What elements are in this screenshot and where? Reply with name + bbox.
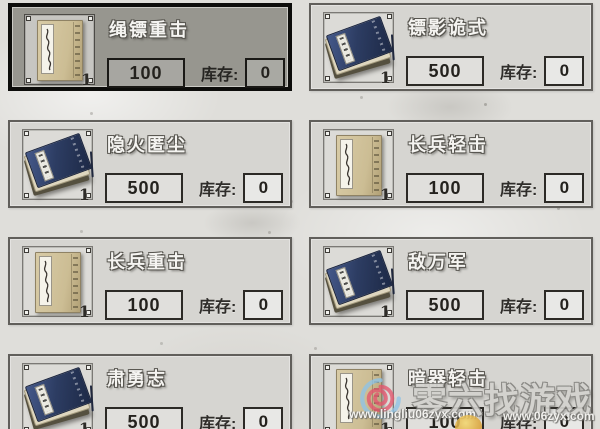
stock-value: 0 <box>560 412 569 429</box>
manual-icon-frame: 1 <box>22 129 93 200</box>
item-name: 绳镖重击 <box>109 16 189 42</box>
frame-corner-ornament <box>325 131 330 136</box>
item-meta-row: 100 库存: 0 <box>107 59 285 87</box>
manual-label-strip <box>340 373 353 423</box>
tan-manual-icon <box>35 252 81 313</box>
stock-value: 0 <box>261 63 270 83</box>
manual-label-strip <box>340 139 353 189</box>
book-stitching <box>374 140 379 191</box>
binding-cord <box>90 385 94 411</box>
shop-item-card[interactable]: 1 镖影诡式 500 库存: 0 <box>309 3 593 91</box>
item-name: 镖影诡式 <box>408 14 488 40</box>
frame-corner-ornament <box>24 248 29 253</box>
shop-item-card[interactable]: 1 隐火匿尘 500 库存: 0 <box>8 120 292 208</box>
frame-corner-ornament <box>387 365 392 370</box>
book-crease <box>73 22 74 78</box>
price-box: 100 <box>105 290 183 320</box>
stock-box: 0 <box>544 290 584 320</box>
price-box: 100 <box>406 407 484 429</box>
stock-label: 库存: <box>199 176 236 200</box>
frame-corner-ornament <box>86 365 91 370</box>
price-value: 500 <box>127 178 160 199</box>
stock-box: 0 <box>243 290 283 320</box>
price-value: 100 <box>129 63 162 84</box>
item-meta-row: 500 库存: 0 <box>406 57 584 85</box>
manual-icon-frame: 1 <box>24 14 95 85</box>
tan-manual-icon <box>37 20 83 81</box>
manual-icon-frame: 1 <box>323 129 394 200</box>
shop-item-grid: 1 绳镖重击 100 库存: 0 1 <box>8 3 593 429</box>
price-box: 500 <box>105 173 183 203</box>
item-meta-row: 500 库存: 0 <box>105 174 283 202</box>
stock-value: 0 <box>259 178 268 198</box>
frame-corner-ornament <box>88 16 93 21</box>
quantity-badge: 1 <box>81 72 92 88</box>
item-meta-row: 500 库存: 0 <box>406 291 584 319</box>
frame-corner-ornament <box>387 131 392 136</box>
stock-box: 0 <box>544 407 584 429</box>
item-name: 敌万军 <box>408 248 468 274</box>
frame-corner-ornament <box>325 248 330 253</box>
quantity-badge: 1 <box>380 70 391 86</box>
shop-item-card[interactable]: 1 绳镖重击 100 库存: 0 <box>8 3 292 91</box>
frame-corner-ornament <box>86 248 91 253</box>
shop-item-card[interactable]: 1 暗器轻击 100 库存: 0 <box>309 354 593 429</box>
frame-corner-ornament <box>325 76 330 81</box>
manual-icon-frame: 1 <box>22 363 93 429</box>
item-name: 隐火匿尘 <box>107 131 187 157</box>
binding-cord <box>391 34 395 60</box>
book-crease <box>372 371 373 427</box>
stock-box: 0 <box>245 58 285 88</box>
item-name: 长兵轻击 <box>408 131 488 157</box>
frame-corner-ornament <box>325 365 330 370</box>
stock-box: 0 <box>544 173 584 203</box>
book-stitching <box>73 257 78 308</box>
price-value: 500 <box>428 61 461 82</box>
manual-icon-frame: 1 <box>323 12 394 83</box>
frame-corner-ornament <box>325 310 330 315</box>
stock-value: 0 <box>259 295 268 315</box>
frame-corner-ornament <box>26 16 31 21</box>
frame-corner-ornament <box>387 14 392 19</box>
frame-corner-ornament <box>325 14 330 19</box>
frame-corner-ornament <box>325 193 330 198</box>
item-name: 长兵重击 <box>107 248 187 274</box>
stock-box: 0 <box>544 56 584 86</box>
manual-label-strip <box>35 384 55 416</box>
shop-screen: 1 绳镖重击 100 库存: 0 1 <box>0 0 600 429</box>
book-crease <box>71 254 72 310</box>
stock-value: 0 <box>560 178 569 198</box>
stock-label: 库存: <box>500 293 537 317</box>
book-stitching <box>75 25 80 76</box>
binding-cord <box>391 268 395 294</box>
stock-box: 0 <box>243 173 283 203</box>
tan-manual-icon <box>336 135 382 196</box>
manual-label-strip <box>336 33 356 65</box>
stock-label: 库存: <box>199 293 236 317</box>
manual-label-strip <box>41 24 54 74</box>
frame-corner-ornament <box>24 365 29 370</box>
frame-corner-ornament <box>24 193 29 198</box>
price-value: 100 <box>127 295 160 316</box>
book-crease <box>372 137 373 193</box>
item-name: 暗器轻击 <box>408 365 488 391</box>
price-box: 500 <box>406 290 484 320</box>
stock-label: 库存: <box>500 410 537 429</box>
price-value: 500 <box>428 295 461 316</box>
quantity-badge: 1 <box>79 304 90 320</box>
price-box: 100 <box>107 58 185 88</box>
price-value: 100 <box>428 178 461 199</box>
manual-icon-frame: 1 <box>323 246 394 317</box>
item-meta-row: 100 库存: 0 <box>406 174 584 202</box>
shop-item-card[interactable]: 1 敌万军 500 库存: 0 <box>309 237 593 325</box>
item-name: 肃勇志 <box>107 365 167 391</box>
tan-manual-icon <box>336 369 382 429</box>
quantity-badge: 1 <box>380 304 391 320</box>
manual-label-strip <box>39 256 52 306</box>
manual-icon-frame: 1 <box>22 246 93 317</box>
quantity-badge: 1 <box>380 421 391 429</box>
price-box: 500 <box>406 56 484 86</box>
item-meta-row: 500 库存: 0 <box>105 408 283 429</box>
shop-item-card[interactable]: 1 长兵轻击 100 库存: 0 <box>309 120 593 208</box>
stock-value: 0 <box>560 61 569 81</box>
shop-item-card[interactable]: 1 肃勇志 500 库存: 0 <box>8 354 292 429</box>
item-meta-row: 100 库存: 0 <box>105 291 283 319</box>
stock-value: 0 <box>259 412 268 429</box>
binding-cord <box>90 151 94 177</box>
frame-corner-ornament <box>86 131 91 136</box>
frame-corner-ornament <box>24 310 29 315</box>
manual-label-strip <box>35 150 55 182</box>
price-box: 500 <box>105 407 183 429</box>
stock-label: 库存: <box>199 410 236 429</box>
manual-label-strip <box>336 267 356 299</box>
stock-value: 0 <box>560 295 569 315</box>
manual-icon-frame: 1 <box>323 363 394 429</box>
quantity-badge: 1 <box>380 187 391 203</box>
item-meta-row: 100 库存: 0 <box>406 408 584 429</box>
stock-label: 库存: <box>500 176 537 200</box>
price-value: 500 <box>127 412 160 429</box>
shop-item-card[interactable]: 1 长兵重击 100 库存: 0 <box>8 237 292 325</box>
price-box: 100 <box>406 173 484 203</box>
stock-box: 0 <box>243 407 283 429</box>
stock-label: 库存: <box>201 61 238 85</box>
quantity-badge: 1 <box>79 187 90 203</box>
frame-corner-ornament <box>26 78 31 83</box>
frame-corner-ornament <box>387 248 392 253</box>
stock-label: 库存: <box>500 59 537 83</box>
price-value: 100 <box>428 412 461 429</box>
frame-corner-ornament <box>24 131 29 136</box>
quantity-badge: 1 <box>79 421 90 429</box>
book-stitching <box>374 374 379 425</box>
